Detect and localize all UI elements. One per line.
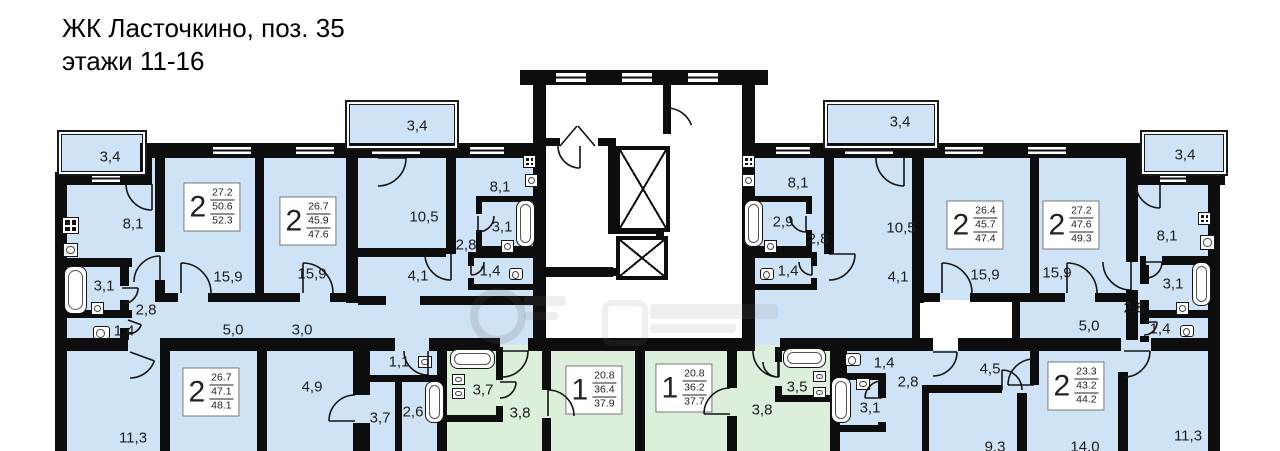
toilet-icon [509,268,523,280]
sink-icon [525,174,538,187]
elevator-shaft-icon [616,146,670,232]
window [296,146,334,155]
room-area-label: 9,3 [985,439,1006,451]
room-area-label: 1,1 [389,354,410,371]
floor-plan: ЖК Ласточкино, поз. 35этажи 11-16 3,48,1… [0,0,1280,451]
wall [837,425,886,432]
wall [811,258,817,266]
apartment-area: 47.6 [1069,219,1093,233]
wall [878,373,886,398]
stove-icon [1198,212,1211,225]
sink-icon [418,356,432,368]
room-fill-blue [55,345,440,451]
apartment-rooms-count: 1 [571,375,588,405]
room-area-label: 3,4 [890,114,911,131]
wall [1140,318,1149,324]
room-area-label: 8,1 [788,175,809,192]
apartment-total-area: 52.3 [210,215,234,228]
room-area-label: 4,5 [980,361,1001,378]
apartment-living-area: 26.7 [209,372,233,386]
room-area-label: 14,0 [1070,439,1099,451]
apartment-area: 45.9 [306,215,330,229]
wall [155,158,165,252]
window [945,146,983,155]
wall [446,155,456,254]
window [688,72,718,83]
wall [330,293,358,302]
room-area-label: 8,1 [1157,228,1178,245]
wall [546,138,560,146]
apartment-area: 36.4 [592,384,616,398]
wall [533,267,613,277]
room-area-label: 5,0 [1079,318,1100,335]
apartment-info-badge: 226.445.747.4 [946,201,1003,250]
watermark-left [462,282,572,344]
elevator-shaft-icon [616,236,668,280]
apartment-area: 45.7 [973,219,997,233]
apartment-rooms-count: 2 [189,192,206,222]
room-area-label: 3,1 [1163,276,1184,293]
room-area-label: 2,8 [136,302,157,319]
room-area-label: 2,9 [773,214,794,231]
window [622,72,652,83]
apartment-info-badge: 226.747.148.1 [182,368,239,417]
room-area-label: 3,7 [370,410,391,427]
sink-icon [856,378,870,390]
room-area-label: 1,4 [1150,321,1171,338]
apartment-living-area: 20.8 [682,368,706,382]
sink-icon [813,371,826,382]
wall [255,158,264,296]
room-area-label: 3,7 [473,382,494,399]
wall [160,348,170,451]
apartment-area: 43.2 [1074,380,1098,394]
apartment-info-badge: 120.836.237.7 [655,364,712,413]
sink-icon [1176,302,1189,315]
sink-icon [1200,235,1215,250]
room-area-label: 11,3 [119,430,147,447]
apartment-area: 47.1 [209,386,233,400]
wall [358,248,446,257]
wall [155,293,178,302]
apartment-living-area: 26.4 [973,205,997,219]
wall [120,258,129,286]
watermark-right-logo [602,300,648,346]
stove-icon [523,155,536,168]
room-area-label: 15,9 [297,266,326,283]
wall [542,418,551,451]
watermark-left-logo [470,288,526,344]
apartment-info-badge: 120.836.437.9 [565,366,622,415]
balcony-frame [345,100,459,150]
room-area-label: 4,1 [888,269,909,286]
wall [468,258,474,266]
wall [727,416,737,451]
apartment-living-area: 27.2 [210,187,234,201]
room-area-label: 3,5 [787,379,808,396]
apartment-total-area: 44.2 [1074,394,1098,407]
wall [922,385,1002,393]
room-area-label: 15,9 [1042,265,1071,282]
sink-icon [63,243,78,257]
watermark-right-text [650,304,778,319]
apartment-total-area: 37.9 [592,398,616,411]
wall [1151,338,1220,351]
room-area-label: 2,6 [403,404,424,421]
apartment-living-area: 26.7 [306,201,330,215]
sink-icon [764,240,777,253]
toilet-icon [845,353,861,366]
apartment-rooms-count: 2 [1048,210,1065,240]
apartment-total-area: 49.3 [1069,233,1093,246]
wall [496,347,503,380]
sink-icon [742,174,755,187]
wall [608,138,616,234]
bathtub-icon [64,266,87,314]
wall [1118,372,1128,451]
toilet-icon [93,326,110,339]
room-area-label: 3,1 [860,400,881,417]
window [776,146,810,155]
apartment-area: 50.6 [210,201,234,215]
watermark-right-text2 [650,324,736,333]
balcony-frame [823,100,939,150]
stove-icon [742,155,755,168]
apartment-total-area: 47.4 [973,233,997,246]
wall [496,406,503,422]
room-area-label: 15,9 [970,267,999,284]
apartment-living-area: 20.8 [592,370,616,384]
apartment-info-badge: 227.250.652.3 [183,183,240,232]
sink-icon [452,374,465,385]
wall [257,347,267,451]
bathtub-icon [783,348,826,368]
wall [663,82,671,134]
toilet-icon [1180,325,1194,337]
wall [806,202,812,214]
wall [1126,143,1138,262]
sink-icon [452,388,465,399]
wall [775,347,782,362]
room-area-label: 3,1 [492,219,513,236]
apartment-info-badge: 226.745.947.6 [279,197,336,246]
wall [1030,347,1039,385]
wall [1140,265,1149,284]
room-area-label: 8,1 [123,216,144,233]
apartment-living-area: 27.2 [1069,205,1093,219]
wall [635,347,645,451]
plan-title-line2: этажи 11-16 [62,46,204,76]
bathtub-icon [450,349,495,369]
room-area-label: 5,0 [223,322,244,339]
wall [1140,336,1149,342]
room-area-label: 8,1 [490,179,511,196]
bathtub-icon [831,377,851,423]
room-area-label: 2,8 [808,231,829,248]
wall [443,415,503,422]
room-area-label: 10,5 [409,209,438,226]
wall [1140,256,1146,265]
apartment-rooms-count: 2 [188,377,205,407]
wall [346,143,358,303]
apartment-rooms-count: 1 [661,373,678,403]
room-area-label: 11,3 [1174,428,1202,445]
plan-title-line1: ЖК Ласточкино, поз. 35 [62,13,345,43]
room-area-label: 3,8 [752,402,773,419]
bathtub-icon [744,200,763,247]
apartment-area: 36.2 [682,382,706,396]
room-area-label: 3,8 [510,405,531,422]
sink-icon [813,387,826,398]
toilet-icon [760,268,774,280]
wall [1017,393,1027,451]
wall [755,196,812,202]
window [470,146,504,155]
room-area-label: 3,4 [100,149,121,166]
room-area-label: 1,4 [778,263,799,280]
watermark-right [598,296,788,346]
room-area-label: 2,8 [1124,300,1145,317]
watermark-left-text2 [524,312,558,320]
apartment-rooms-count: 2 [952,210,969,240]
room-area-label: 3,0 [292,322,313,339]
room-area-label: 10,5 [886,220,915,237]
stove-icon [62,217,79,234]
room-area-label: 4,9 [302,379,323,396]
wall [208,293,300,302]
room-area-label: 15,9 [213,269,242,286]
wall [395,382,402,451]
wall [55,338,128,351]
apartment-total-area: 37.7 [682,396,706,409]
room-area-label: 3,1 [94,278,115,295]
watermark-left-text [524,296,566,306]
window [1028,146,1066,155]
apartment-total-area: 47.6 [306,229,330,242]
wall [353,423,370,451]
bathtub-icon [425,381,444,423]
wall [353,347,370,395]
window [556,72,586,83]
room-area-label: 4,1 [408,268,429,285]
plan-title: ЖК Ласточкино, поз. 35этажи 11-16 [62,12,345,78]
wall [958,338,1121,351]
window [213,146,251,155]
sink-icon [91,302,104,315]
apartment-total-area: 48.1 [209,400,233,413]
wall [1030,158,1039,296]
room-area-label: 2,8 [898,374,919,391]
apartment-info-badge: 227.247.649.3 [1042,201,1099,250]
wall [922,385,929,451]
apartment-rooms-count: 2 [1053,371,1070,401]
room-area-label: 1,4 [114,323,135,340]
wall [727,347,737,388]
room-area-label: 1,4 [874,355,895,372]
room-area-label: 3,4 [407,118,428,135]
wall [755,284,817,290]
bathtub-icon [1192,262,1211,306]
wall [358,296,386,305]
bathtub-icon [516,200,535,247]
room-area-label: 2,8 [456,237,477,254]
apartment-rooms-count: 2 [285,206,302,236]
room-area-label: 1,4 [480,263,501,280]
room-area-label: 3,4 [1175,147,1196,164]
apartment-living-area: 23.3 [1074,366,1098,380]
sink-icon [501,240,514,253]
wall [1140,310,1208,318]
apartment-info-badge: 223.343.244.2 [1047,362,1104,411]
wall [542,347,551,390]
wall [476,202,482,214]
